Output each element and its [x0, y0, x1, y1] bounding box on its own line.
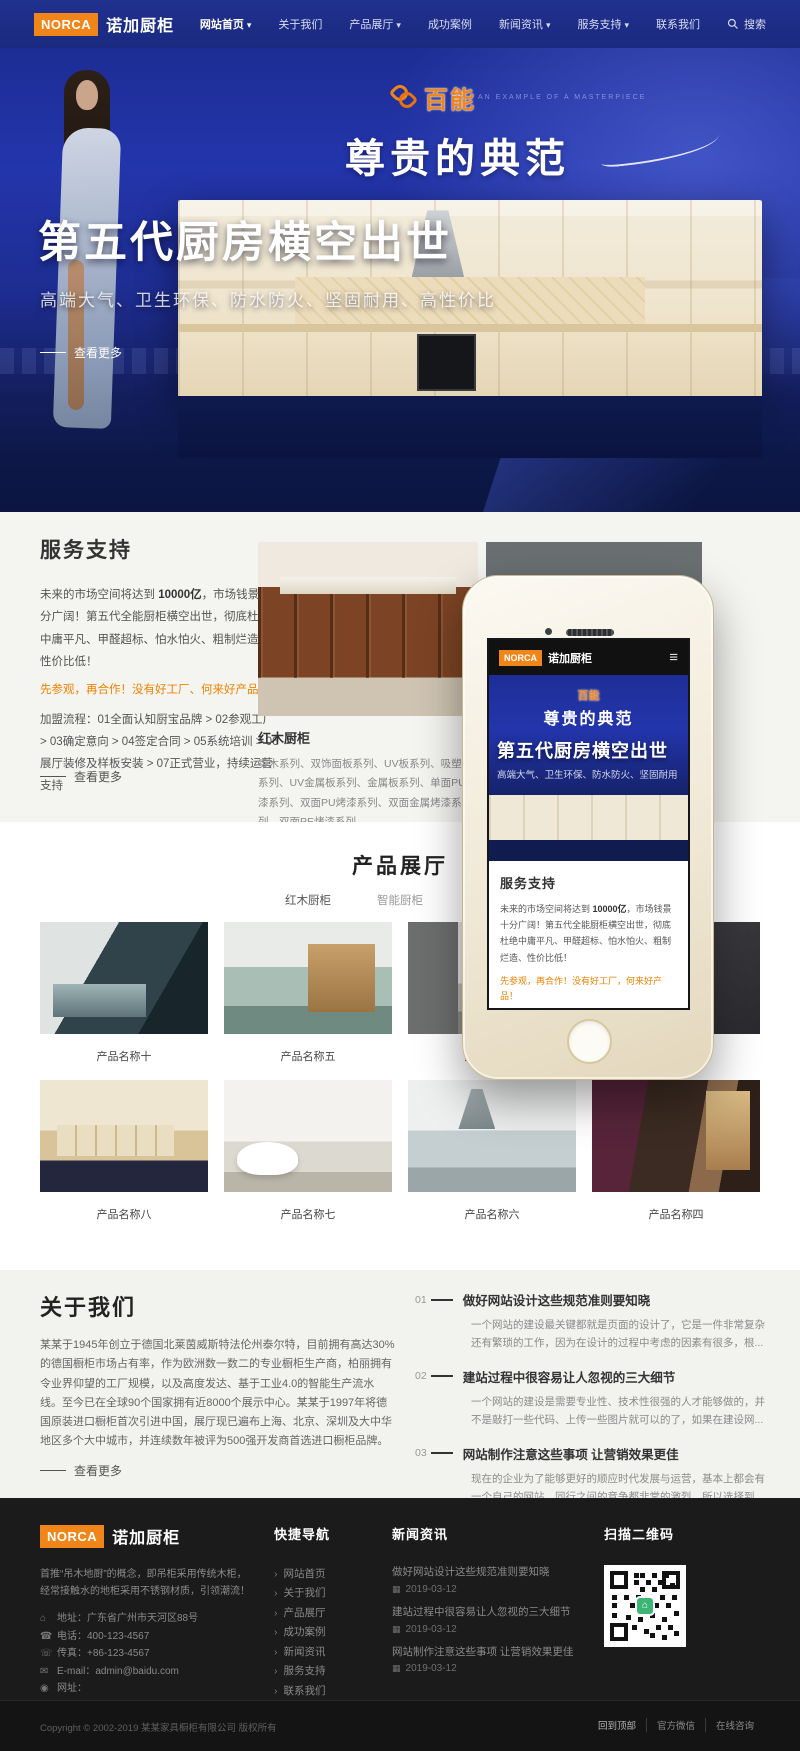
search-icon	[727, 18, 739, 30]
mobile-services-paragraph: 未来的市场空间将达到 10000亿，市场钱景十分广阔！第五代全能厨柜横空出世，彻…	[500, 901, 677, 966]
contact-website: ◉网址：	[40, 1680, 250, 1698]
mobile-services-highlight: 先参观，再合作！没有好工厂，何来好产品！	[500, 974, 677, 1005]
about-more-link[interactable]: 查看更多	[40, 1462, 122, 1479]
footer-news-title: 网站制作注意这些事项 让营销效果更佳	[392, 1645, 577, 1661]
news-number: 03	[415, 1447, 453, 1459]
hamburger-menu-icon[interactable]	[669, 649, 678, 666]
brand-name: 诺加厨柜	[106, 12, 174, 36]
bottom-links: 回到顶部 官方微信 在线咨询	[588, 1718, 764, 1732]
page: NORCA 诺加厨柜 网站首页 关于我们 产品展厅 成功案例 新闻资讯 服务支持…	[0, 0, 800, 1751]
footer-news-item[interactable]: 网站制作注意这些事项 让营销效果更佳 2019-03-12	[392, 1645, 577, 1675]
about-more-label: 查看更多	[74, 1462, 122, 1479]
quicknav-heading: 快捷导航	[274, 1524, 330, 1543]
mobile-hero-subtitle: 高端大气、卫生环保、防水防火、坚固耐用	[497, 767, 678, 781]
calendar-icon	[392, 1584, 401, 1595]
qr-center-logo	[635, 1596, 655, 1616]
about-title: 关于我们	[40, 1290, 136, 1322]
tab-redwood-cabinets[interactable]: 红木厨柜	[285, 892, 331, 908]
news-desc: 一个网站的建设是需要专业性、技术性很强的人才能够做的，并不是敲打一些代码、上传一…	[471, 1393, 767, 1430]
mobile-kitchen-photo	[489, 795, 688, 861]
camera-icon	[545, 628, 552, 635]
mobile-services-title: 服务支持	[500, 873, 677, 892]
news-item: 01 做好网站设计这些规范准则要知晓 一个网站的建设最关键都就是页面的设计了，它…	[415, 1290, 767, 1353]
main-nav: 网站首页 关于我们 产品展厅 成功案例 新闻资讯 服务支持 联系我们	[200, 16, 700, 32]
product-name: 产品名称六	[408, 1206, 576, 1220]
product-name: 产品名称七	[224, 1206, 392, 1220]
footer-news-date-text: 2019-03-12	[406, 1663, 457, 1674]
product-photo	[40, 1080, 208, 1192]
search-button[interactable]: 搜索	[727, 16, 766, 32]
product-name: 产品名称四	[592, 1206, 760, 1220]
contact-phone-text: 电话：400-123-4567	[57, 1628, 149, 1646]
footer-news-item[interactable]: 做好网站设计这些规范准则要知晓 2019-03-12	[392, 1565, 577, 1595]
location-icon: ⌂	[40, 1610, 51, 1628]
product-photo	[224, 922, 392, 1034]
back-to-top-link[interactable]: 回到顶部	[588, 1718, 646, 1732]
baineng-knot-icon	[392, 85, 418, 111]
hero-banner: 百能 AN EXAMPLE OF A MASTERPIECE 尊贵的典范 介绍精…	[0, 48, 800, 512]
footer-news-date: 2019-03-12	[392, 1584, 577, 1595]
carousel-card-title: 红木厨柜	[258, 728, 478, 747]
news-number: 02	[415, 1370, 453, 1382]
footer-logo-box: NORCA	[40, 1525, 104, 1548]
mobile-logo-box: NORCA	[499, 650, 542, 666]
nav-item-products[interactable]: 产品展厅	[349, 16, 401, 32]
product-photo	[224, 1080, 392, 1192]
footer-nav-contact[interactable]: 联系我们	[274, 1682, 330, 1701]
footer-news-list: 做好网站设计这些规范准则要知晓 2019-03-12 建站过程中很容易让人忽视的…	[392, 1565, 577, 1674]
mobile-hero-title: 第五代厨房横空出世	[497, 737, 668, 763]
email-icon: ✉	[40, 1663, 51, 1681]
online-consult-link[interactable]: 在线咨询	[705, 1718, 764, 1732]
calendar-icon	[392, 1624, 401, 1635]
product-card[interactable]: 产品名称四	[592, 1080, 760, 1220]
mobile-brand-name: 诺加厨柜	[548, 650, 592, 666]
nav-item-contact[interactable]: 联系我们	[656, 16, 700, 32]
baineng-logo: 百能	[392, 80, 476, 115]
baineng-tagline: AN EXAMPLE OF A MASTERPIECE	[478, 94, 646, 101]
footer: NORCA 诺加厨柜 首推“吊木地厨”的概念，即吊柜采用传统木柜，经常接触水的地…	[0, 1498, 800, 1700]
product-name: 产品名称八	[40, 1206, 208, 1220]
footer-nav-products[interactable]: 产品展厅	[274, 1604, 330, 1623]
fax-icon: ☏	[40, 1645, 51, 1663]
product-card[interactable]: 产品名称十	[40, 922, 208, 1062]
contact-email: ✉E-mail：admin@baidu.com	[40, 1663, 250, 1681]
mobile-header: NORCA 诺加厨柜	[489, 640, 688, 675]
official-wechat-link[interactable]: 官方微信	[646, 1718, 705, 1732]
service-carousel-card[interactable]: 红木厨柜 实木系列、双饰面板系列、UV板系列、吸塑板系列、UV金属板系列、金属板…	[258, 542, 478, 833]
qr-code	[604, 1565, 686, 1647]
product-photo	[408, 1080, 576, 1192]
product-card[interactable]: 产品名称八	[40, 1080, 208, 1220]
news-item: 03 网站制作注意这些事项 让营销效果更佳 现在的企业为了能够更好的顺应时代发展…	[415, 1444, 767, 1507]
footer-nav-list: 网站首页 关于我们 产品展厅 成功案例 新闻资讯 服务支持 联系我们	[274, 1565, 330, 1701]
dash-decoration	[40, 776, 66, 777]
brand-logo[interactable]: NORCA 诺加厨柜	[34, 12, 174, 36]
footer-brand-name: 诺加厨柜	[112, 1524, 180, 1548]
product-name: 产品名称五	[224, 1048, 392, 1062]
bottom-bar: Copyright © 2002-2019 某某家具橱柜有限公司 版权所有 回到…	[0, 1700, 800, 1751]
product-card[interactable]: 产品名称五	[224, 922, 392, 1062]
footer-nav-home[interactable]: 网站首页	[274, 1565, 330, 1584]
top-navbar: NORCA 诺加厨柜 网站首页 关于我们 产品展厅 成功案例 新闻资讯 服务支持…	[0, 0, 800, 48]
footer-news-heading: 新闻资讯	[392, 1524, 577, 1543]
contact-phone: ☎电话：400-123-4567	[40, 1628, 250, 1646]
footer-news-title: 建站过程中很容易让人忽视的三大细节	[392, 1605, 577, 1621]
hero-more-label: 查看更多	[74, 344, 122, 361]
hero-title: 第五代厨房横空出世	[38, 208, 452, 270]
footer-qr-column: 扫描二维码	[604, 1524, 686, 1647]
contact-fax: ☏传真：+86-123-4567	[40, 1645, 250, 1663]
globe-icon: ◉	[40, 1680, 51, 1698]
footer-quicknav-column: 快捷导航 网站首页 关于我们 产品展厅 成功案例 新闻资讯 服务支持 联系我们	[274, 1524, 330, 1701]
news-desc: 一个网站的建设最关键都就是页面的设计了，它是一件非常复杂还有繁琐的工作，因为在设…	[471, 1316, 767, 1353]
footer-description: 首推“吊木地厨”的概念，即吊柜采用传统木柜，经常接触水的地柜采用不锈钢材质，引领…	[40, 1566, 250, 1600]
services-paragraph-strong: 10000亿	[158, 589, 201, 601]
calendar-icon	[392, 1663, 401, 1674]
mobile-services-pre: 未来的市场空间将达到	[500, 904, 593, 914]
footer-news-title: 做好网站设计这些规范准则要知晓	[392, 1565, 577, 1581]
about-paragraph: 某某于1945年创立于德国北莱茵威斯特法伦州泰尔特，目前拥有高达30%的德国橱柜…	[40, 1336, 396, 1454]
footer-news-item[interactable]: 建站过程中很容易让人忽视的三大细节 2019-03-12	[392, 1605, 577, 1635]
news-item: 02 建站过程中很容易让人忽视的三大细节 一个网站的建设是需要专业性、技术性很强…	[415, 1367, 767, 1430]
redwood-kitchen-photo	[258, 542, 478, 716]
contact-address: ⌂地址：广东省广州市天河区88号	[40, 1610, 250, 1628]
footer-news-date-text: 2019-03-12	[406, 1584, 457, 1595]
services-more-link[interactable]: 查看更多	[40, 768, 122, 785]
footer-news-date: 2019-03-12	[392, 1663, 577, 1674]
news-list: 01 做好网站设计这些规范准则要知晓 一个网站的建设最关键都就是页面的设计了，它…	[415, 1290, 767, 1520]
news-title: 做好网站设计这些规范准则要知晓	[463, 1290, 651, 1309]
dash-decoration	[40, 352, 66, 353]
tab-smart-cabinets[interactable]: 智能厨柜	[377, 892, 423, 908]
news-title: 网站制作注意这些事项 让营销效果更佳	[463, 1444, 679, 1463]
footer-nav-about[interactable]: 关于我们	[274, 1584, 330, 1603]
mobile-services-strong: 10000亿	[593, 904, 627, 914]
nav-item-home[interactable]: 网站首页	[200, 16, 252, 32]
contact-address-text: 地址：广东省广州市天河区88号	[57, 1610, 198, 1628]
qr-heading: 扫描二维码	[604, 1524, 686, 1543]
nav-item-cases[interactable]: 成功案例	[428, 16, 472, 32]
footer-nav-services[interactable]: 服务支持	[274, 1662, 330, 1681]
speaker-icon	[566, 629, 614, 636]
news-title: 建站过程中很容易让人忽视的三大细节	[463, 1367, 676, 1386]
product-card[interactable]: 产品名称六	[408, 1080, 576, 1220]
services-more-label: 查看更多	[74, 768, 122, 785]
hero-slogan: 尊贵的典范	[345, 126, 570, 184]
footer-logo[interactable]: NORCA 诺加厨柜	[40, 1524, 250, 1548]
nav-item-services[interactable]: 服务支持	[577, 16, 629, 32]
phone-screen: NORCA 诺加厨柜 百能 尊贵的典范 第五代厨房横空出世 高端大气、卫生环保、…	[487, 638, 690, 1010]
footer-news-column: 新闻资讯 做好网站设计这些规范准则要知晓 2019-03-12 建站过程中很容易…	[392, 1524, 577, 1684]
mobile-hero-banner: 百能 尊贵的典范 第五代厨房横空出世 高端大气、卫生环保、防水防火、坚固耐用	[489, 675, 688, 795]
dash-decoration	[40, 1470, 66, 1471]
product-photo	[40, 922, 208, 1034]
hero-more-link[interactable]: 查看更多	[40, 344, 122, 361]
footer-news-date-text: 2019-03-12	[406, 1624, 457, 1635]
services-title: 服务支持	[40, 534, 132, 564]
services-highlight: 先参观，再合作！没有好工厂、何来好产品！	[40, 680, 280, 701]
contact-email-text: E-mail：admin@baidu.com	[57, 1663, 179, 1681]
baineng-logo-text: 百能	[424, 80, 476, 115]
copyright-text: Copyright © 2002-2019 某某家具橱柜有限公司 版权所有	[40, 1720, 277, 1734]
mobile-services-section: 服务支持 未来的市场空间将达到 10000亿，市场钱景十分广阔！第五代全能厨柜横…	[489, 861, 688, 1004]
phone-icon: ☎	[40, 1628, 51, 1646]
contact-website-text: 网址：	[57, 1680, 87, 1698]
brand-logo-box: NORCA	[34, 13, 98, 36]
footer-brand-column: NORCA 诺加厨柜 首推“吊木地厨”的概念，即吊柜采用传统木柜，经常接触水的地…	[40, 1524, 250, 1698]
footer-contact-list: ⌂地址：广东省广州市天河区88号 ☎电话：400-123-4567 ☏传真：+8…	[40, 1610, 250, 1698]
news-item-link[interactable]: 02 建站过程中很容易让人忽视的三大细节	[415, 1367, 767, 1386]
mobile-hero-slogan: 尊贵的典范	[489, 705, 688, 729]
search-label: 搜索	[744, 16, 766, 32]
product-photo	[592, 1080, 760, 1192]
product-card[interactable]: 产品名称七	[224, 1080, 392, 1220]
phone-mockup: NORCA 诺加厨柜 百能 尊贵的典范 第五代厨房横空出世 高端大气、卫生环保、…	[462, 575, 714, 1080]
nav-item-about[interactable]: 关于我们	[278, 16, 322, 32]
product-name: 产品名称十	[40, 1048, 208, 1062]
contact-fax-text: 传真：+86-123-4567	[57, 1645, 150, 1663]
footer-news-date: 2019-03-12	[392, 1624, 577, 1635]
home-button[interactable]	[567, 1019, 612, 1064]
services-paragraph-pre: 未来的市场空间将达到	[40, 589, 158, 601]
nav-item-news[interactable]: 新闻资讯	[499, 16, 551, 32]
about-section: 关于我们 某某于1945年创立于德国北莱茵威斯特法伦州泰尔特，目前拥有高达30%…	[0, 1270, 800, 1498]
news-number: 01	[415, 1294, 453, 1306]
news-item-link[interactable]: 01 做好网站设计这些规范准则要知晓	[415, 1290, 767, 1309]
services-paragraph: 未来的市场空间将达到 10000亿，市场钱景十分广阔！第五代全能厨柜横空出世，彻…	[40, 584, 280, 674]
footer-nav-news[interactable]: 新闻资讯	[274, 1643, 330, 1662]
news-item-link[interactable]: 03 网站制作注意这些事项 让营销效果更佳	[415, 1444, 767, 1463]
footer-nav-cases[interactable]: 成功案例	[274, 1623, 330, 1642]
hero-subtitle: 高端大气、卫生环保、防水防火、坚固耐用、高性价比	[40, 286, 496, 311]
mobile-baineng-logo: 百能	[489, 687, 688, 703]
